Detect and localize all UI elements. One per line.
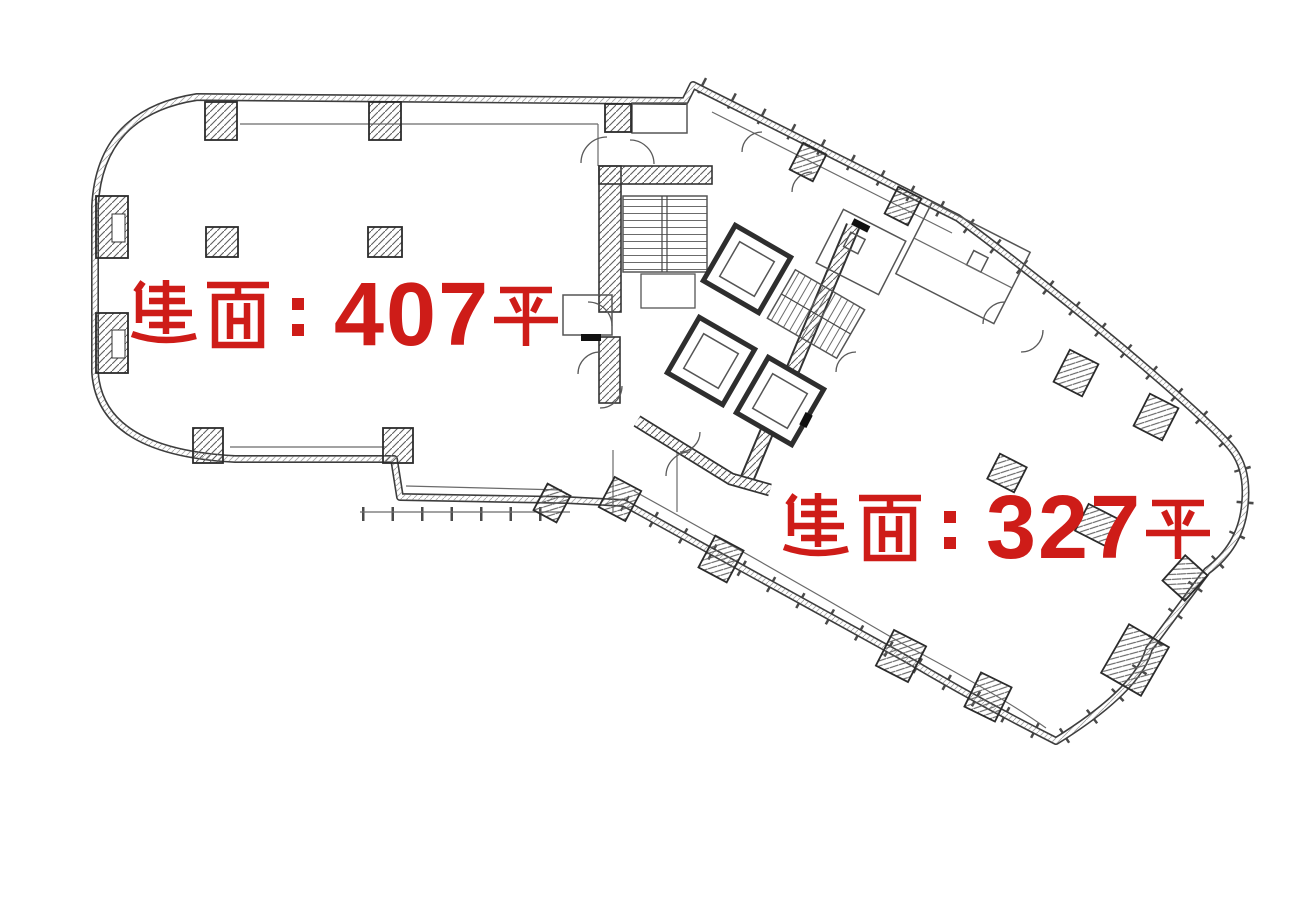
central-core: [563, 132, 1043, 490]
char-mian: [859, 498, 921, 558]
char-jian: [784, 493, 848, 553]
core-wall-vertical: [599, 166, 621, 312]
stair-landing: [641, 274, 695, 308]
floor-plan-svg: 407 327: [0, 0, 1315, 919]
stairwell-main: [623, 196, 707, 308]
elevator-shaft-3: [736, 357, 823, 444]
duct-room: [632, 103, 687, 133]
char-jian: [132, 280, 196, 340]
area-number-right: 327: [986, 478, 1142, 578]
column: [206, 227, 238, 257]
column: [876, 630, 926, 682]
column: [368, 227, 402, 257]
column-pier: [96, 313, 128, 373]
column: [1054, 350, 1099, 397]
elevator-shaft-2: [667, 317, 754, 404]
column: [605, 104, 631, 132]
floor-plan-image: 407 327: [0, 0, 1315, 919]
column-pier: [96, 196, 128, 258]
column: [599, 477, 641, 521]
char-mian: [207, 285, 269, 345]
area-number-left: 407: [334, 265, 490, 365]
column: [698, 536, 743, 583]
column: [369, 102, 401, 140]
column: [383, 428, 413, 463]
columns: [96, 102, 1208, 722]
core-wall-horizontal: [599, 166, 712, 184]
char-ping: [1146, 503, 1210, 559]
stairwell-rotated: [767, 270, 864, 358]
char-colon: [292, 298, 304, 336]
column: [193, 428, 223, 463]
area-label-left: 407: [132, 265, 558, 365]
entrance-threshold: [581, 334, 601, 341]
column: [205, 102, 237, 140]
char-colon: [944, 511, 956, 549]
column: [1162, 555, 1207, 600]
area-label-right: 327: [784, 478, 1210, 578]
char-ping: [494, 290, 558, 346]
core-wall-vertical-lower: [599, 337, 620, 403]
